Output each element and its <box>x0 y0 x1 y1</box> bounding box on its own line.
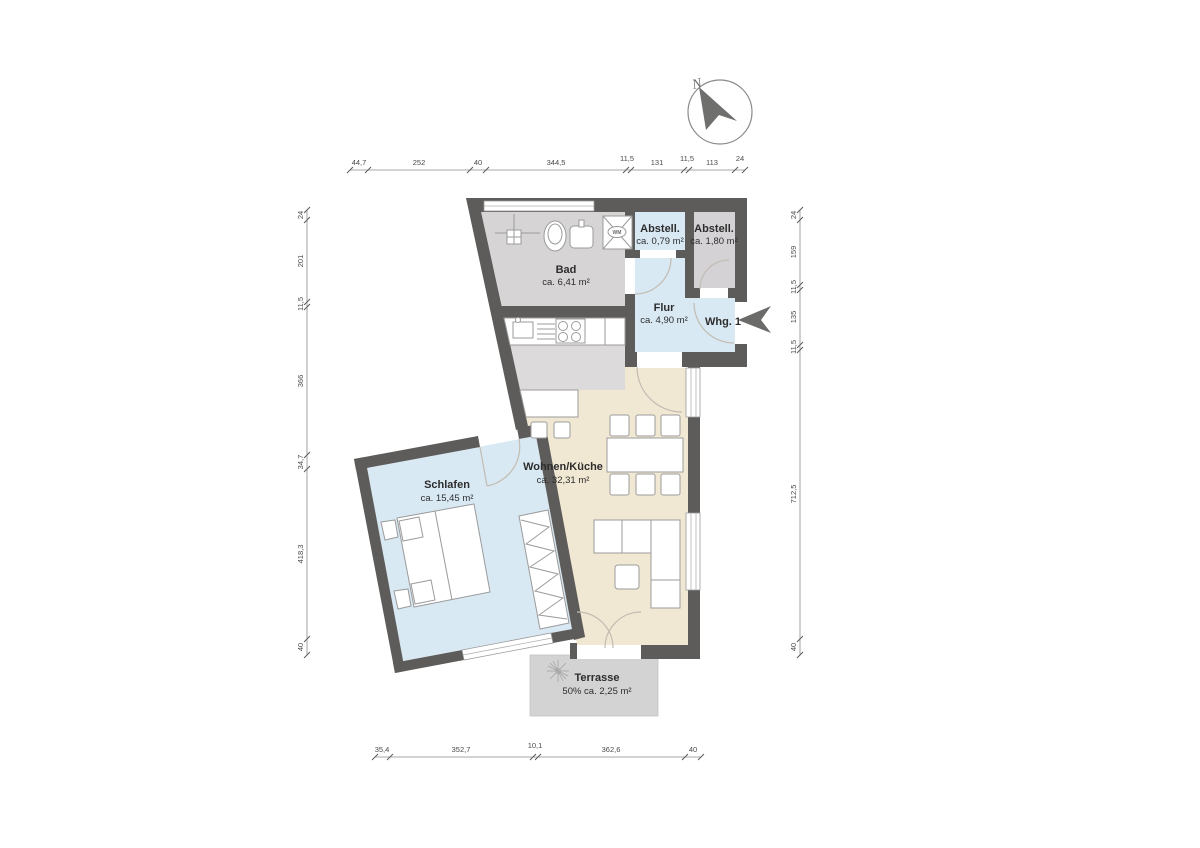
kitchen-gray-zone <box>510 345 625 390</box>
dining-chair <box>661 474 680 495</box>
dimension-label: 40 <box>689 745 697 754</box>
room-wohnen-area: ca. 32,31 m² <box>537 475 590 486</box>
dimension-label: 35,4 <box>375 745 390 754</box>
north-label: N <box>690 76 705 93</box>
dimension-label: 712,5 <box>789 485 798 504</box>
dimension-label: 11,5 <box>789 280 798 294</box>
room-terrasse-label: Terrasse <box>574 672 619 684</box>
kitchen-island <box>520 390 578 417</box>
dimension-label: 11,5 <box>789 340 798 354</box>
dimension-label: 352,7 <box>452 745 471 754</box>
dimension-label: 201 <box>296 255 305 268</box>
dimension-label: 11,5 <box>296 297 305 311</box>
dimension-label: 40 <box>789 643 798 651</box>
dimension-label: 131 <box>651 158 664 167</box>
terrace-door-gap <box>577 645 641 659</box>
bar-stool <box>531 422 547 438</box>
dimension-label: 24 <box>789 211 798 219</box>
dimension-label: 44,7 <box>352 158 367 167</box>
dining-chair <box>610 415 629 436</box>
dimension-label: 24 <box>296 211 305 219</box>
stove-icon <box>556 319 585 343</box>
dining-table <box>607 438 683 472</box>
dimension-label: 159 <box>789 246 798 259</box>
abstell-large-door-gap <box>700 288 728 298</box>
entrance-unit-label: Whg. 1 <box>705 316 741 328</box>
dimension-label: 418,3 <box>296 545 305 564</box>
dimension-label: 252 <box>413 158 426 167</box>
pillow <box>411 580 435 604</box>
room-abstell-small-label: Abstell. <box>640 223 680 235</box>
sink-icon <box>570 226 593 248</box>
room-schlafen-label: Schlafen <box>424 479 470 491</box>
coffee-table <box>615 565 639 589</box>
room-abstell-large-label: Abstell. <box>694 223 734 235</box>
room-abstell-large-area: ca. 1,80 m² <box>690 236 738 247</box>
bad-door-gap <box>625 258 635 294</box>
dining-chair <box>636 474 655 495</box>
room-bad-area: ca. 6,41 m² <box>542 277 590 288</box>
north-arrow-icon: N <box>688 76 752 144</box>
pillow <box>399 517 423 541</box>
floor-plan-svg: WM <box>0 0 1200 848</box>
dimension-label: 113 <box>706 158 718 167</box>
kitchen-sink-icon <box>513 322 533 338</box>
room-terrasse-area: 50% ca. 2,25 m² <box>562 686 631 697</box>
dimension-label: 135 <box>789 311 798 324</box>
room-bad-label: Bad <box>556 264 577 276</box>
dimension-label: 362,6 <box>602 745 621 754</box>
room-wohnen-label: Wohnen/Küche <box>523 461 603 473</box>
sink-tap <box>579 220 584 227</box>
dimension-label: 24 <box>736 154 744 163</box>
dimension-label: 11,5 <box>620 154 634 163</box>
washing-machine-icon: WM <box>603 216 632 249</box>
room-flur-label: Flur <box>654 302 675 314</box>
dimension-label: 40 <box>474 158 482 167</box>
living-window-upper <box>686 368 700 417</box>
plant-icon <box>547 660 569 682</box>
dining-chair <box>610 474 629 495</box>
room-abstell-small-area: ca. 0,79 m² <box>636 236 684 247</box>
dimension-label: 40 <box>296 643 305 651</box>
abstell-small-door-gap <box>640 250 676 258</box>
living-window-lower <box>686 513 700 590</box>
washing-machine-label: WM <box>613 230 622 236</box>
dimension-label: 10,1 <box>528 741 543 750</box>
dining-chair <box>636 415 655 436</box>
bar-stool <box>554 422 570 438</box>
dimension-label: 366 <box>296 375 305 388</box>
floor-plan-page: WM <box>0 0 1200 848</box>
dimension-label: 34,7 <box>296 455 305 470</box>
room-flur-area: ca. 4,90 m² <box>640 315 688 326</box>
dining-chair <box>661 415 680 436</box>
room-schlafen-area: ca. 15,45 m² <box>421 493 474 504</box>
dimension-label: 11,5 <box>680 154 694 163</box>
flur-door-gap <box>637 352 682 367</box>
dimension-label: 344,5 <box>547 158 566 167</box>
